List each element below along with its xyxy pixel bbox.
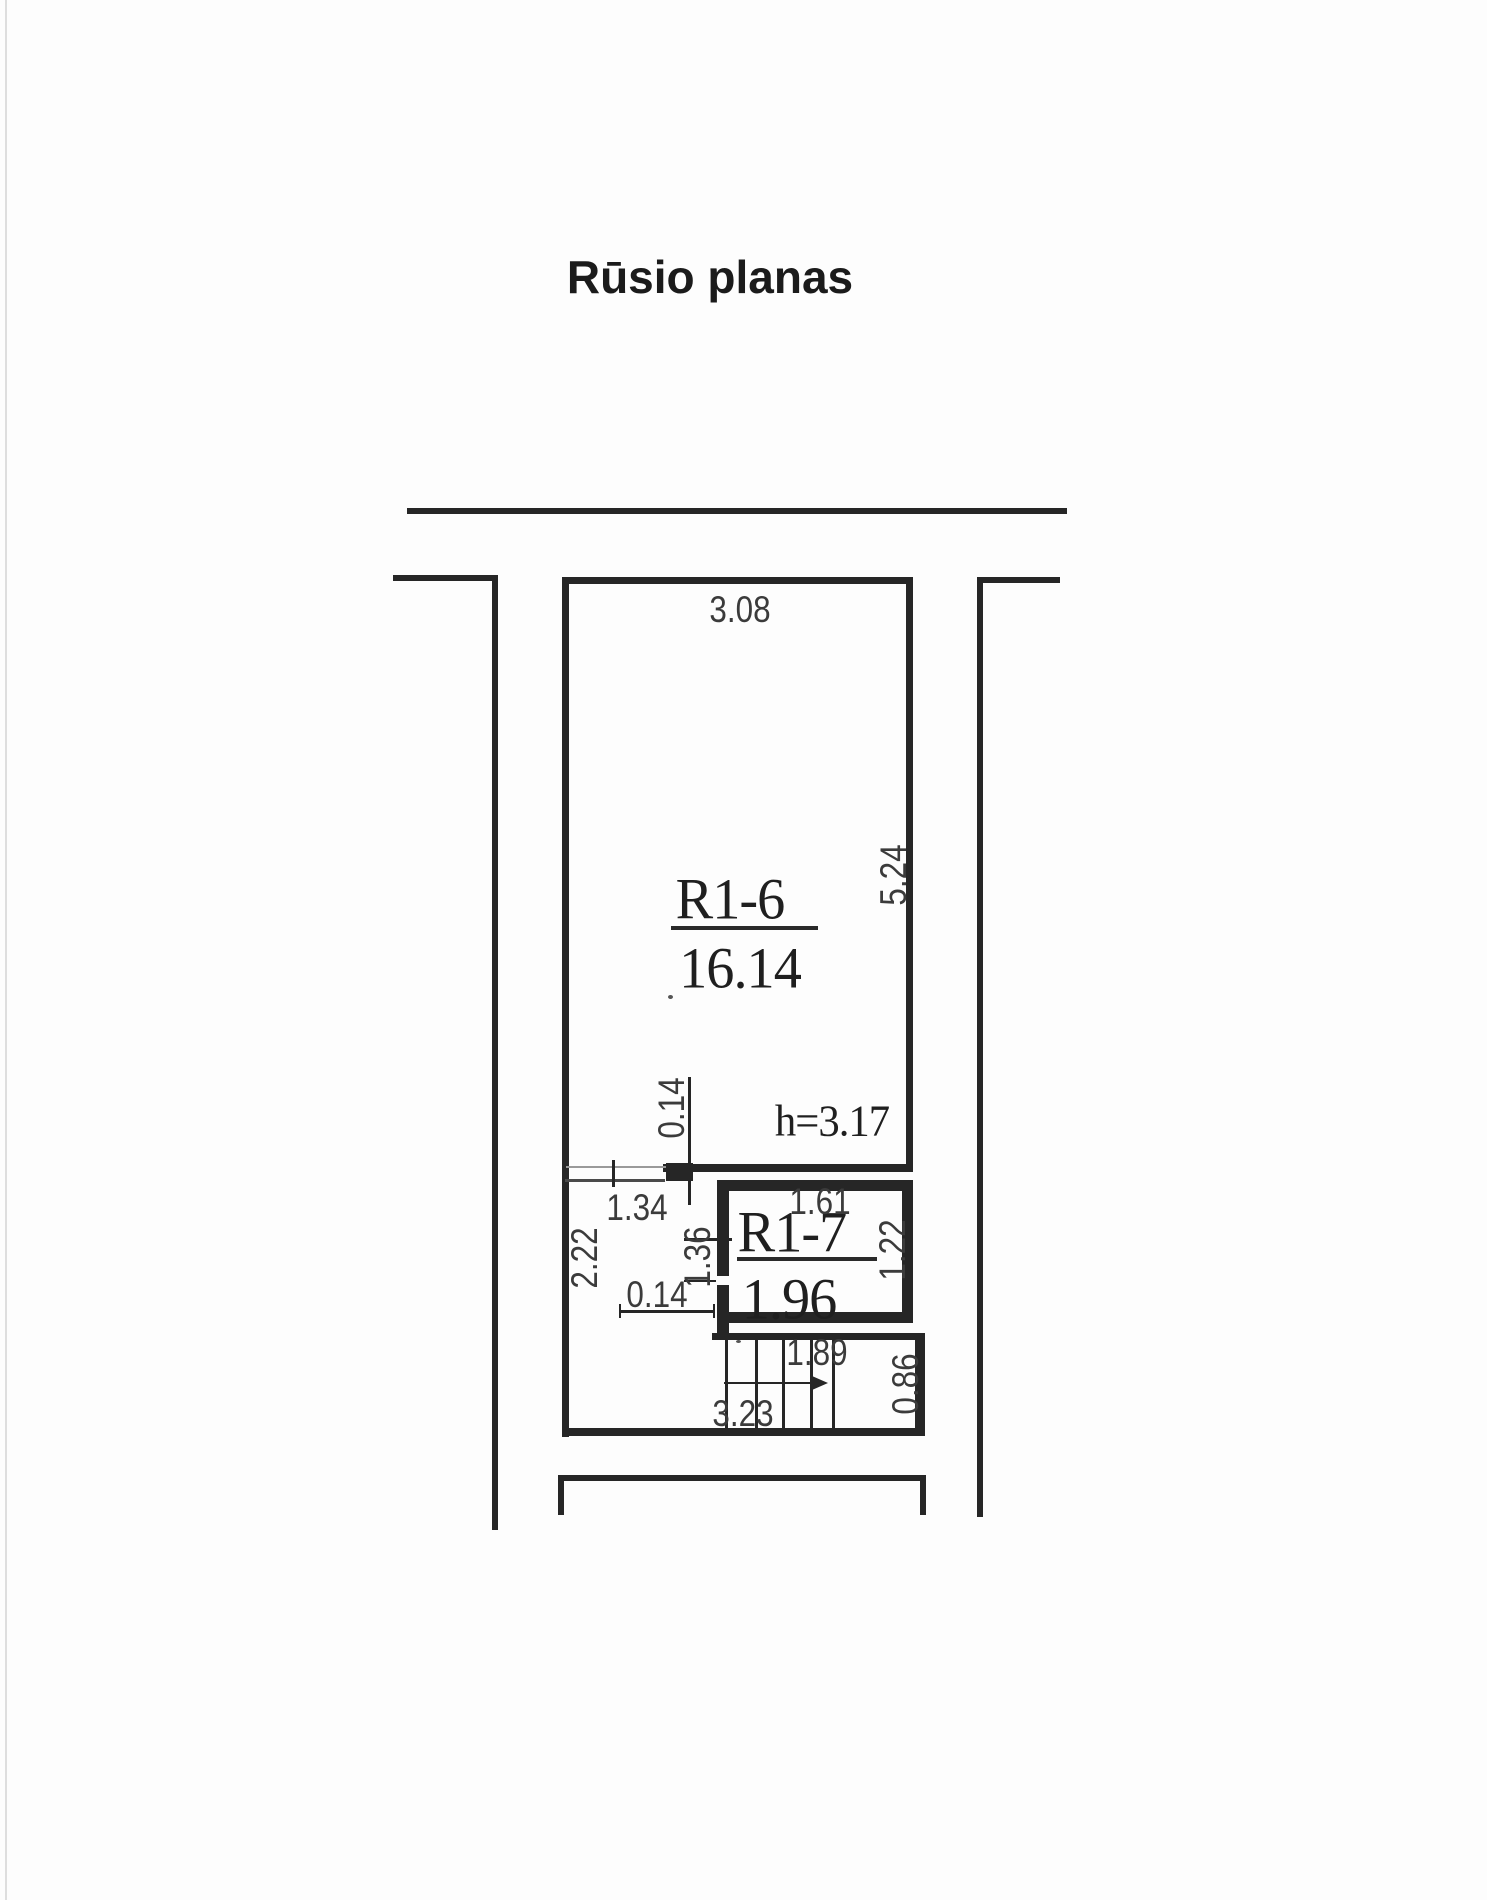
scan-speck xyxy=(736,1340,741,1343)
dim-r17-right-height: 1.22 xyxy=(872,1219,914,1280)
porch-left-stub xyxy=(558,1475,564,1515)
page-title: Rūsio planas xyxy=(567,250,853,304)
r17-underline xyxy=(737,1257,877,1261)
floor-plan-sheet: Rūsio planas R1-6 16.14 h=3.17 xyxy=(0,0,1487,1900)
outer-left-wall-vertical xyxy=(492,575,498,1530)
dim-wall-thickness-lower: 0.14 xyxy=(626,1274,687,1316)
r16-left-wall xyxy=(562,577,569,1437)
r16-bottom-wall xyxy=(663,1164,913,1172)
dim-stairs-depth: 0.86 xyxy=(885,1353,927,1414)
opening-bottom-line xyxy=(565,1179,665,1182)
dim-r16-right-height: 5.24 xyxy=(873,844,915,905)
outer-right-wall-vertical xyxy=(977,577,983,1517)
outer-top-line xyxy=(407,508,1067,514)
dim-stairs-total-width: 3.23 xyxy=(712,1393,773,1435)
r17-room-area: 1.96 xyxy=(742,1266,837,1333)
dim-r16-top-width: 3.08 xyxy=(709,589,770,631)
stair-direction-line xyxy=(724,1382,816,1384)
scan-speck xyxy=(668,995,673,999)
porch-line xyxy=(558,1475,926,1481)
r16-room-id: R1-6 xyxy=(676,866,785,933)
scan-edge-line xyxy=(5,0,7,1900)
dim-corridor-left-height: 2.22 xyxy=(564,1227,606,1288)
lower-dim-tick-left xyxy=(619,1304,621,1318)
porch-right-stub xyxy=(920,1475,926,1515)
lower-dim-tick-right xyxy=(713,1304,715,1318)
r16-top-wall xyxy=(562,577,913,584)
stair-direction-arrow-icon xyxy=(812,1376,828,1390)
r16-underline xyxy=(671,926,818,930)
dim-opening-width: 1.34 xyxy=(606,1187,667,1229)
dim-r17-top-width: 1.61 xyxy=(789,1181,850,1223)
r16-room-area: 16.14 xyxy=(679,935,801,1002)
opening-top-line xyxy=(566,1166,666,1168)
dim-stairs-run-width: 1.89 xyxy=(786,1332,847,1374)
dim-wall-thickness-upper: 0.14 xyxy=(651,1077,693,1138)
opening-dim-tick xyxy=(612,1160,615,1187)
r16-height-note: h=3.17 xyxy=(775,1096,889,1147)
outer-left-wall-horizontal xyxy=(393,575,498,581)
outer-right-wall-horizontal xyxy=(978,577,1060,583)
stair-step-line xyxy=(782,1340,785,1428)
